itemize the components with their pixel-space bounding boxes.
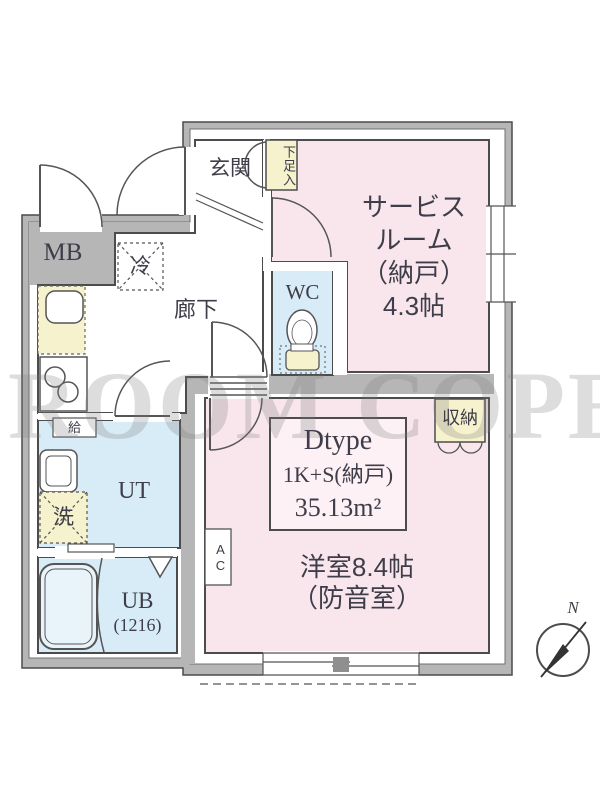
main-room-label: 洋室8.4帖 （防音室） bbox=[257, 552, 457, 614]
entrance-door bbox=[117, 147, 185, 215]
utility-label: UT bbox=[104, 476, 164, 506]
compass bbox=[537, 622, 589, 677]
wc-label: WC bbox=[272, 279, 333, 305]
unit-info: Dtype 1K+S(納戸) 35.13m² bbox=[272, 423, 404, 524]
service-room-label-line: 4.3帖 bbox=[336, 290, 492, 323]
bath-label: UB (1216) bbox=[98, 588, 177, 636]
compass-north-label: N bbox=[564, 597, 582, 618]
service-room-label-line: ルーム bbox=[336, 224, 492, 257]
service-room-label-line: （納戸） bbox=[336, 257, 492, 290]
main-room-label-line: （防音室） bbox=[257, 583, 457, 614]
refrigerator-label: 冷 bbox=[118, 254, 163, 280]
water-heater-label: 給 bbox=[53, 420, 96, 436]
unit-type: Dtype bbox=[272, 423, 404, 459]
closet-label: 収納 bbox=[435, 407, 485, 430]
main-room-label-line: 洋室8.4帖 bbox=[257, 552, 457, 583]
unit-layout: 1K+S(納戸) bbox=[272, 459, 404, 491]
ac-label: AC bbox=[210, 535, 228, 581]
meter-box-label: MB bbox=[33, 237, 93, 268]
bath-sliding-door bbox=[68, 544, 114, 552]
floor-plan-page: ROOM COPE 玄関 下足入 サービス ルーム （納戸） 4.3帖 MB 冷… bbox=[0, 0, 600, 800]
hallway-label: 廊下 bbox=[164, 296, 228, 324]
service-room-label: サービス ルーム （納戸） 4.3帖 bbox=[336, 191, 492, 323]
washbasin bbox=[40, 450, 77, 492]
unit-area: 35.13m² bbox=[272, 491, 404, 524]
entrance-label: 玄関 bbox=[202, 156, 258, 182]
service-room-label-line: サービス bbox=[336, 191, 492, 224]
bath-label-line: UB bbox=[98, 588, 177, 614]
stove bbox=[40, 357, 87, 411]
bathtub bbox=[40, 564, 97, 649]
washer-label: 洗 bbox=[40, 505, 87, 531]
bath-label-line: (1216) bbox=[98, 614, 177, 636]
kitchen-sink bbox=[46, 291, 83, 323]
shoe-box-label: 下足入 bbox=[268, 143, 296, 189]
floor-plan-drawing bbox=[0, 0, 600, 800]
